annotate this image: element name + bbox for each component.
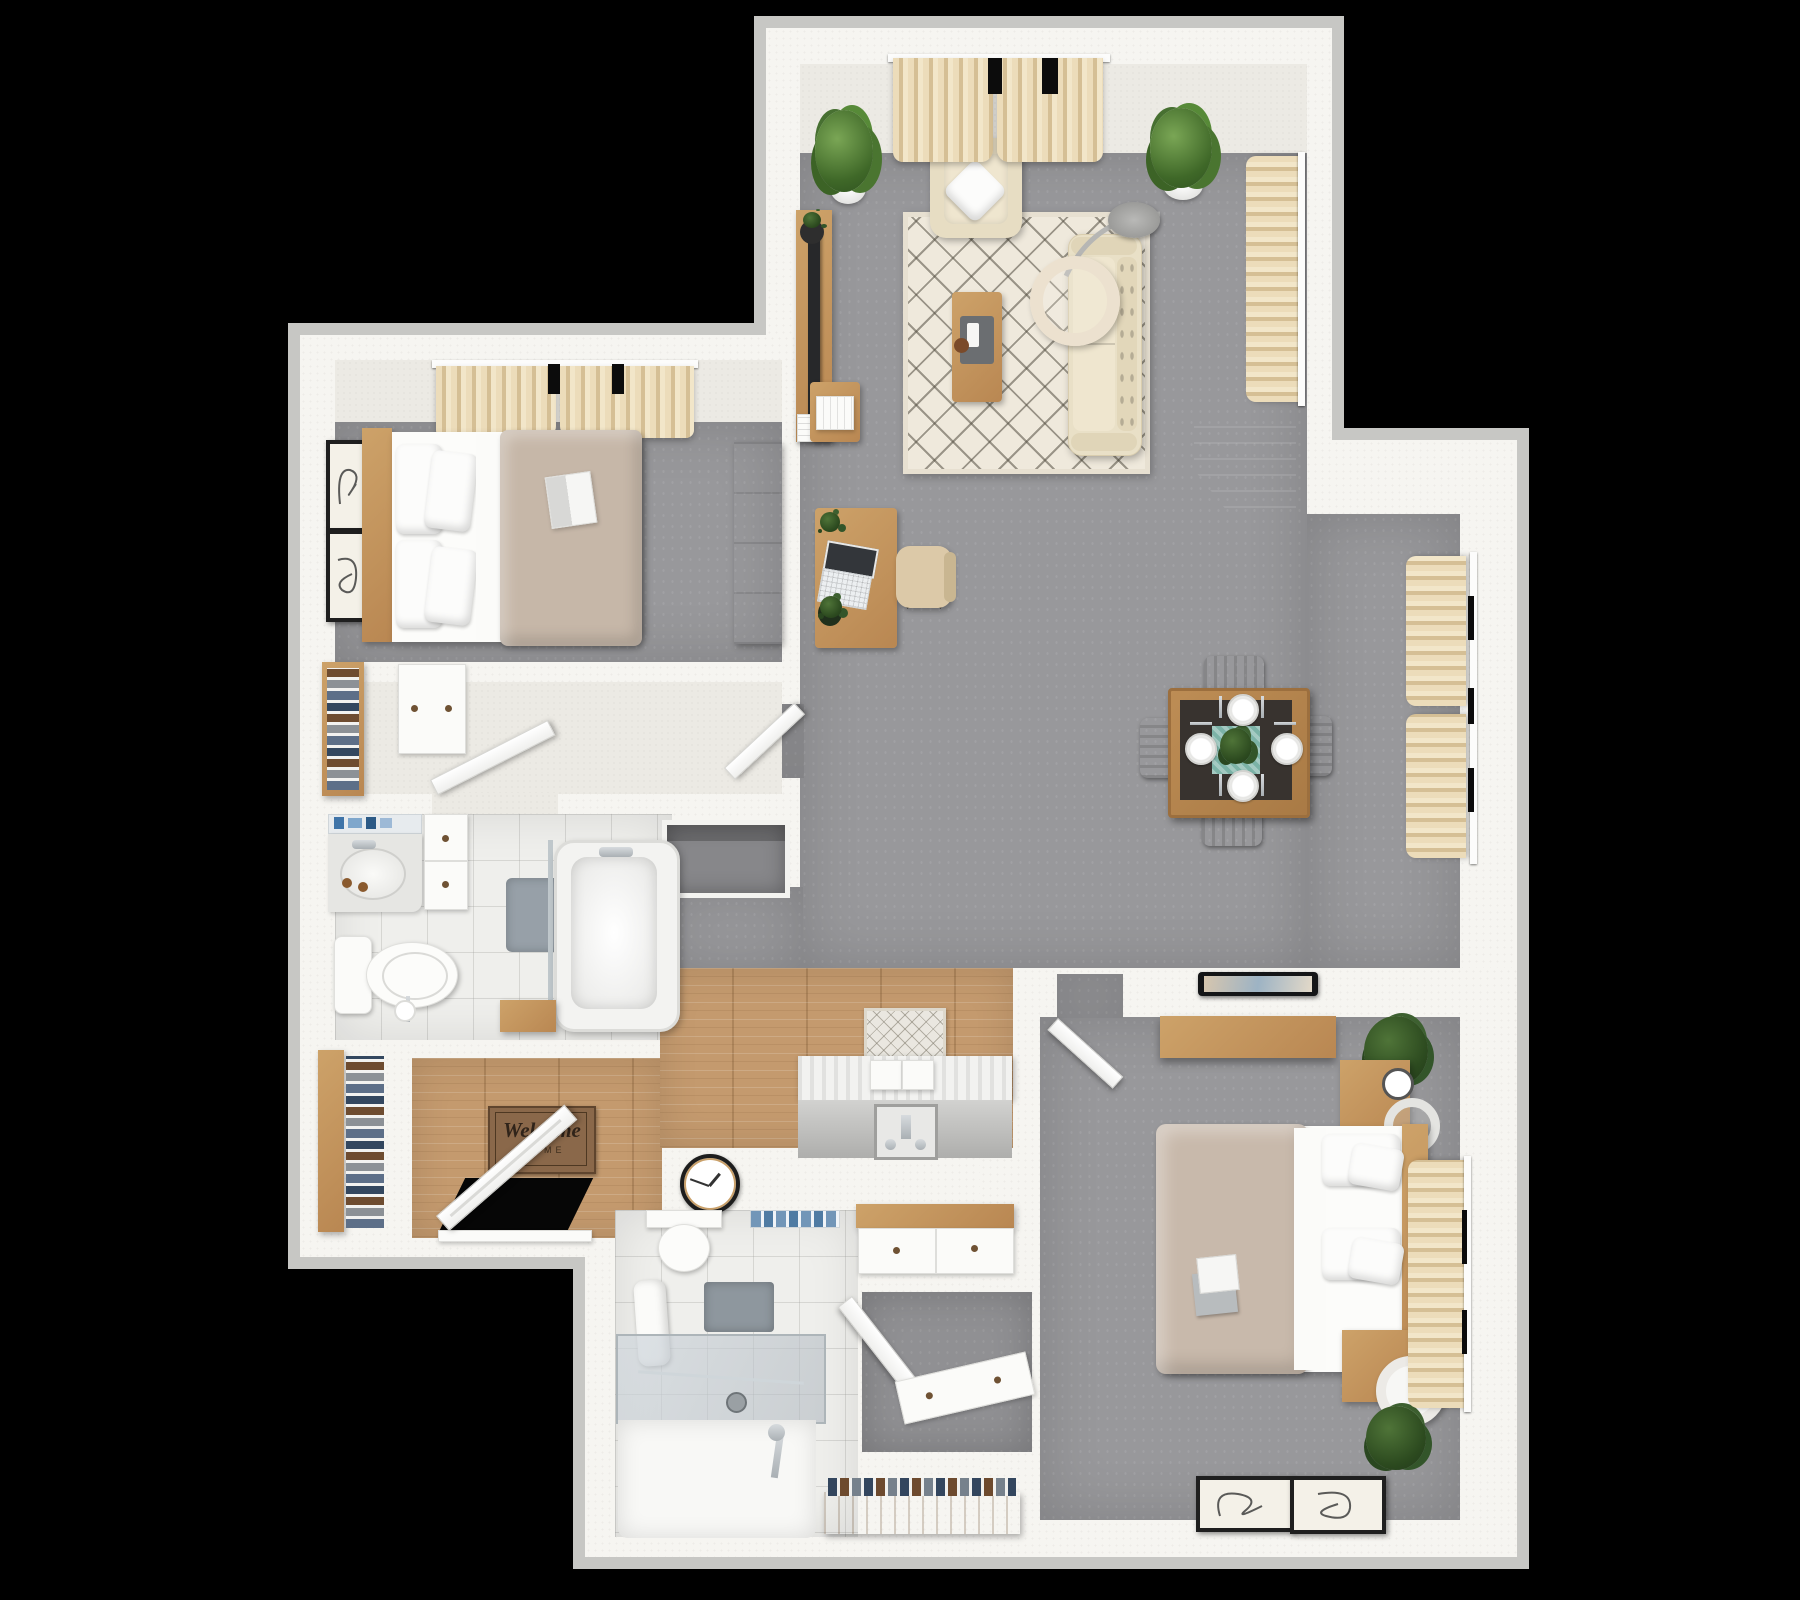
window-frame-dash	[1468, 768, 1474, 812]
toiletry	[348, 818, 362, 828]
plate	[1271, 733, 1303, 765]
patio-curtains	[1246, 156, 1300, 402]
hookup-valve	[915, 1139, 926, 1150]
curtains	[560, 366, 694, 438]
curtain-rod	[1464, 1156, 1471, 1412]
window-gap	[988, 58, 1002, 94]
shower-glass	[616, 1334, 826, 1424]
window-gap	[1042, 58, 1058, 94]
door-threshold	[438, 1230, 592, 1242]
door-knob	[411, 705, 418, 712]
clock-hand-hour	[708, 1173, 721, 1187]
curtain-rod	[1298, 152, 1305, 406]
vanity-knob	[893, 1247, 900, 1254]
cutlery	[1219, 774, 1222, 796]
potted-plant	[1150, 108, 1212, 188]
window-gap	[548, 364, 560, 394]
sofa-arm-bottom	[1071, 433, 1137, 451]
side-table-magazines	[816, 396, 854, 430]
soap-brush	[342, 878, 352, 888]
window-frame-dash	[1462, 1210, 1467, 1264]
bed1-duvet	[500, 430, 642, 646]
window-gap	[612, 364, 624, 394]
door-knob	[445, 705, 452, 712]
curtains	[893, 58, 993, 162]
pillow	[1347, 1142, 1406, 1192]
plate	[1227, 694, 1259, 726]
coffee-table	[952, 292, 1002, 402]
plate	[1185, 733, 1217, 765]
dining-curtains	[1406, 714, 1466, 858]
centerpiece-plant	[1220, 728, 1252, 764]
glass-panel	[548, 840, 553, 1026]
bath1-doorway-gap	[432, 793, 558, 814]
floor-plan-canvas: Welcome HOME	[0, 0, 1800, 1600]
entry-closet-clothes	[346, 1056, 384, 1228]
cutlery	[1261, 774, 1264, 796]
gray-towel	[704, 1282, 774, 1332]
bed2-doorway-gap	[1057, 974, 1123, 1018]
art-squiggle	[1200, 1480, 1290, 1528]
window-frame-dash	[1462, 1310, 1467, 1354]
vanity2-shelf	[856, 1204, 1014, 1228]
art-squiggle	[330, 534, 366, 618]
vanity-knob	[971, 1245, 978, 1252]
floating-shelf	[1160, 1016, 1336, 1058]
dining-curtains	[1406, 556, 1466, 706]
cutlery	[1219, 696, 1222, 718]
window-frame-dash	[1468, 596, 1474, 640]
alarm-clock	[1382, 1068, 1414, 1100]
towel-shelf	[750, 1210, 840, 1228]
washer-lid	[902, 1060, 934, 1090]
bed2-curtains	[1408, 1160, 1464, 1408]
shoe-row	[828, 1478, 1016, 1496]
shower-wand-head	[768, 1424, 785, 1441]
arc-lamp-base	[1108, 202, 1160, 238]
console-plant	[803, 212, 821, 228]
potted-plant	[815, 110, 873, 192]
toiletry	[380, 818, 392, 828]
shower-drain	[726, 1392, 747, 1413]
pillow	[424, 545, 479, 626]
shower-tray	[618, 1420, 816, 1538]
entry-closet-board	[318, 1050, 344, 1232]
panel-knob	[993, 1376, 1001, 1384]
cabinet-knob	[442, 835, 449, 842]
window-frame-dash	[1468, 688, 1474, 724]
desk-plant	[820, 512, 840, 532]
arc-lamp-shade	[1030, 256, 1120, 346]
sink	[340, 848, 406, 900]
tub-basin	[571, 857, 657, 1009]
tablet-screen	[1204, 976, 1312, 992]
cutlery	[1261, 696, 1264, 718]
plate	[1227, 770, 1259, 802]
toilet-seat	[382, 952, 448, 1000]
tub-wood-apron	[500, 1000, 556, 1032]
hookup-spout	[901, 1115, 911, 1139]
cutlery	[1190, 722, 1212, 725]
soap-brush	[358, 882, 368, 892]
cutlery	[1274, 722, 1296, 725]
decor-bowl	[954, 338, 969, 353]
dining-chair-top	[1204, 656, 1264, 692]
niche-shadow	[667, 825, 785, 841]
tub-faucet	[599, 847, 633, 857]
toilet2-bowl	[658, 1224, 710, 1272]
washer-lid	[870, 1060, 902, 1090]
wall-art	[1290, 1476, 1386, 1534]
magazine-on-bed	[545, 471, 598, 529]
curtains	[436, 366, 556, 438]
open-book-pages	[1196, 1254, 1240, 1294]
laundry-hookup-box	[874, 1104, 938, 1160]
closet-panel-door	[398, 664, 466, 754]
plant	[1366, 1406, 1426, 1470]
pillow	[423, 449, 478, 532]
cabinet-knob	[442, 881, 449, 888]
tall-cabinet	[424, 814, 468, 910]
bed1-headboard	[362, 428, 392, 642]
panel-knob	[925, 1392, 933, 1400]
vanity2-door-line	[935, 1229, 937, 1273]
art-squiggle	[1294, 1480, 1382, 1530]
toiletry	[334, 817, 344, 829]
hall-carpet-strip	[660, 887, 803, 972]
hookup-valve	[885, 1139, 896, 1150]
folded-clothes	[327, 668, 359, 790]
bed2-duvet	[1156, 1124, 1308, 1374]
side-table	[810, 382, 860, 442]
bed1-dresser	[734, 442, 782, 644]
shoe-rack	[824, 1492, 1020, 1534]
wall-clock	[680, 1154, 740, 1214]
art-squiggle	[330, 444, 364, 528]
desk-plant-2	[820, 596, 842, 618]
bathtub	[554, 840, 680, 1032]
toilet-paper	[394, 1000, 416, 1022]
clock-hand-minute	[690, 1178, 709, 1187]
storage-niche	[662, 820, 790, 898]
wall-art	[1196, 1476, 1294, 1532]
wall-tablet	[1198, 972, 1318, 996]
pillow	[1347, 1236, 1406, 1286]
toiletry	[366, 817, 376, 829]
glass-frame-line	[638, 1370, 804, 1385]
cabinet-divider	[425, 860, 467, 862]
vanity2-cabinet	[858, 1228, 1014, 1274]
chair-back	[944, 552, 956, 602]
faucet	[352, 840, 376, 849]
